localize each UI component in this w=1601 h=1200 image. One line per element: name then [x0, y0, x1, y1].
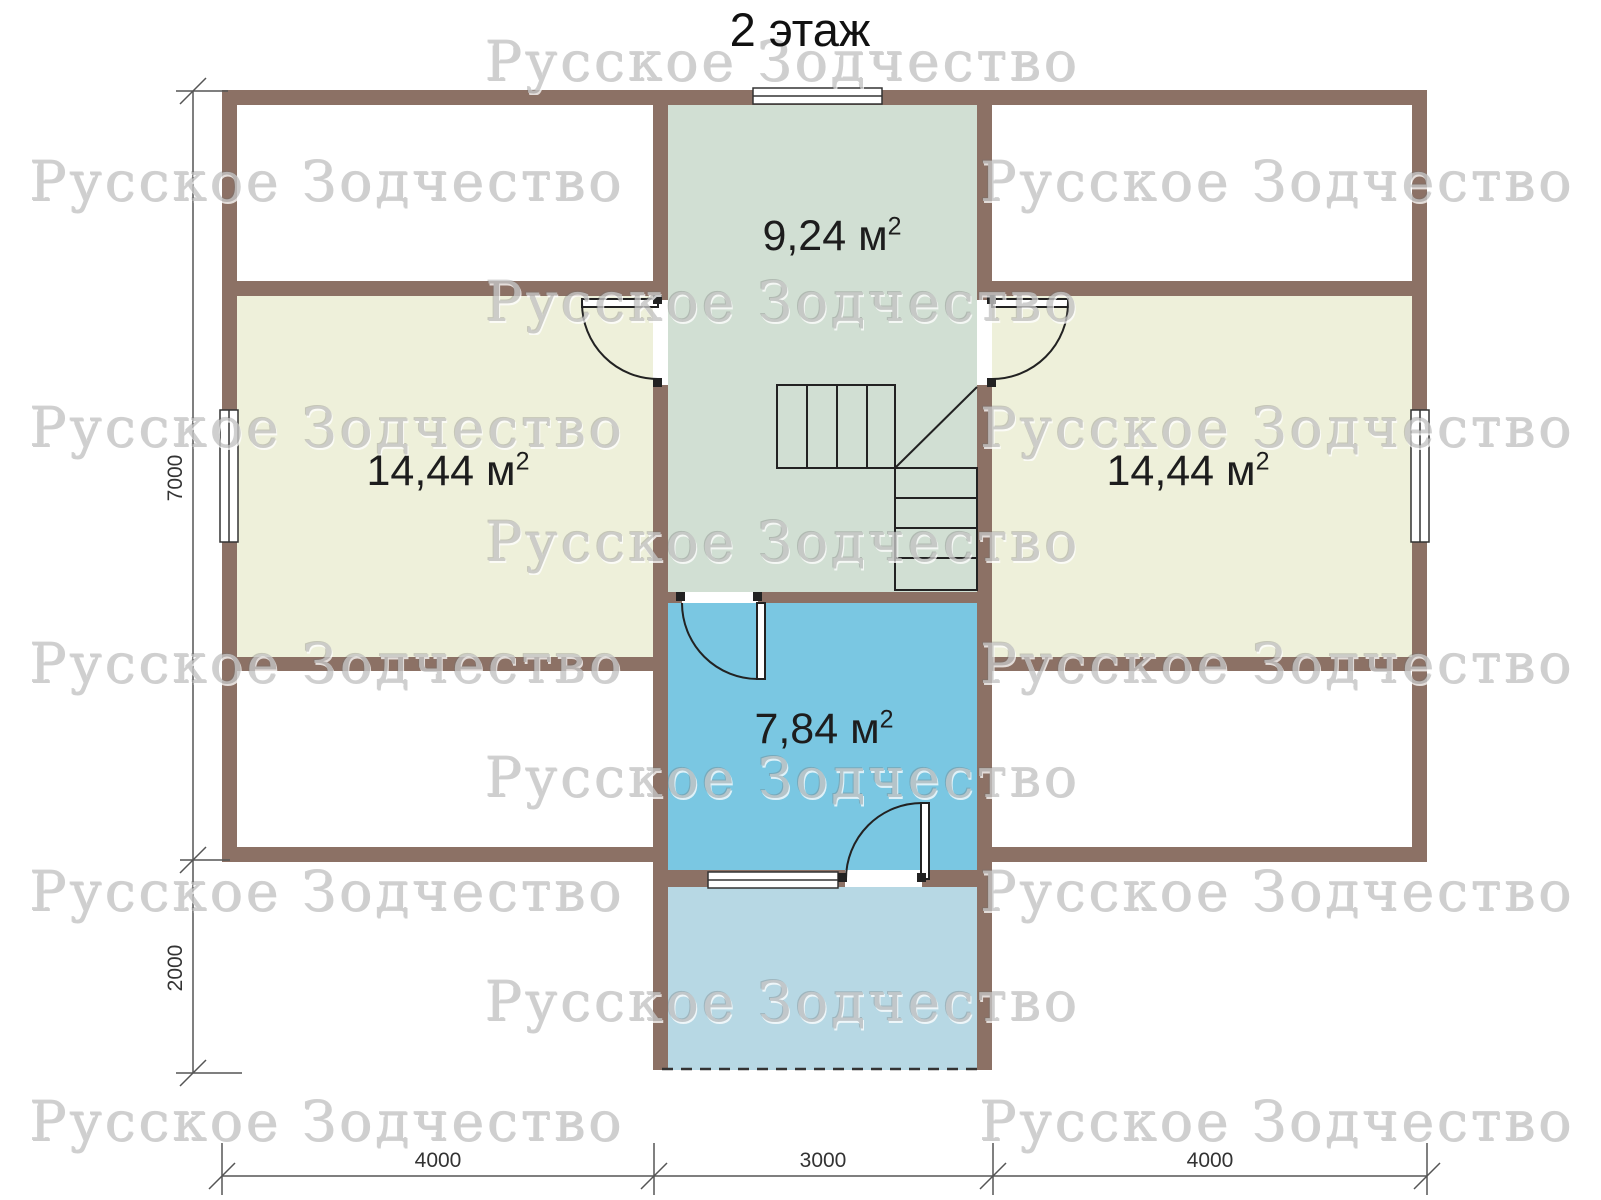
door-balcony	[839, 803, 929, 881]
area-value: 7,84 м	[754, 705, 879, 753]
watermark: Русское Зодчество	[30, 632, 625, 696]
area-value: 9,24 м	[762, 212, 887, 260]
dim-bottom-center: 3000	[768, 1149, 878, 1173]
watermark: Русское Зодчество	[980, 632, 1575, 696]
stair-winder-diagonal	[895, 387, 977, 468]
watermark: Русское Зодчество	[30, 1090, 625, 1154]
watermark: Русское Зодчество	[980, 860, 1575, 924]
watermark: Русское Зодчество	[980, 150, 1575, 214]
area-sup: 2	[888, 213, 902, 241]
plan-title: 2 этаж	[600, 2, 1000, 57]
door-bath-entry	[677, 593, 765, 679]
watermark: Русское Зодчество	[433, 270, 1133, 334]
room-area-left: 14,44 м2	[288, 447, 608, 496]
dim-bottom-right: 4000	[1155, 1149, 1265, 1173]
area-sup: 2	[516, 448, 530, 476]
floor-plan-canvas: Русское Зодчество Русское Зодчество Русс…	[0, 0, 1601, 1200]
watermark: Русское Зодчество	[30, 860, 625, 924]
room-area-right: 14,44 м2	[1028, 447, 1348, 496]
watermark: Русское Зодчество	[980, 1090, 1575, 1154]
dim-vertical-main: 7000	[164, 423, 188, 533]
dim-vertical-balcony: 2000	[164, 913, 188, 1023]
area-sup: 2	[1256, 448, 1270, 476]
room-area-hall: 9,24 м2	[672, 212, 992, 261]
watermark: Русское Зодчество	[433, 970, 1133, 1034]
dim-bottom-left: 4000	[383, 1149, 493, 1173]
watermark: Русское Зодчество	[433, 746, 1133, 810]
area-sup: 2	[880, 706, 894, 734]
area-value: 14,44 м	[366, 447, 515, 495]
area-value: 14,44 м	[1106, 447, 1255, 495]
room-area-bath: 7,84 м2	[664, 705, 984, 754]
watermark: Русское Зодчество	[30, 150, 625, 214]
watermark: Русское Зодчество	[433, 510, 1133, 574]
